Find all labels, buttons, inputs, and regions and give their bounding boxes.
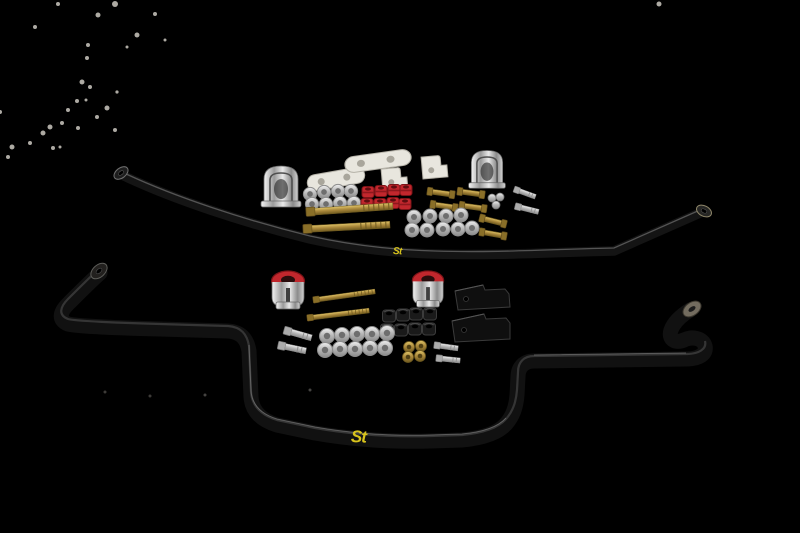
red-bushing	[400, 185, 412, 196]
washer	[335, 328, 350, 343]
product-photo: St St	[0, 0, 800, 533]
washer	[365, 327, 380, 342]
washer	[380, 326, 395, 341]
rubber-bushing	[410, 308, 423, 320]
rubber-bushing	[397, 309, 410, 321]
rubber-bushing	[395, 324, 408, 336]
washer	[320, 329, 335, 344]
red-bushing	[362, 187, 374, 198]
washer	[405, 223, 419, 237]
chrome-clamp-right	[469, 151, 506, 189]
red-bushing	[375, 186, 387, 197]
washer	[454, 208, 468, 222]
washer	[350, 327, 365, 342]
gold-washer	[403, 352, 414, 363]
black-bracket-1	[455, 285, 510, 310]
washer	[436, 222, 450, 236]
washer	[348, 342, 363, 357]
washer-cluster-front-right	[405, 208, 479, 237]
chrome-clamp-left	[261, 166, 301, 207]
washer	[344, 184, 357, 197]
rubber-bushing	[424, 308, 437, 320]
gold-washer	[416, 341, 427, 352]
washer	[439, 209, 453, 223]
rubber-bushing	[423, 323, 436, 335]
red-bushing	[399, 199, 411, 210]
washer	[317, 185, 330, 198]
washer	[465, 221, 479, 235]
washer	[407, 210, 421, 224]
washer	[333, 342, 348, 357]
washer	[451, 222, 465, 236]
washer	[363, 341, 378, 356]
rubber-bushing	[383, 310, 396, 322]
washer	[331, 184, 344, 197]
bushing-clamp-right	[412, 271, 443, 307]
washer	[423, 209, 437, 223]
sway-bar-kit-scene: St St	[0, 0, 800, 533]
washer	[318, 343, 333, 358]
washer	[378, 341, 393, 356]
background	[0, 0, 800, 533]
gold-washer	[404, 342, 415, 353]
red-bushing	[388, 185, 400, 196]
gold-washer	[415, 351, 426, 362]
bushing-clamp-left	[272, 271, 305, 309]
washer	[420, 223, 434, 237]
rubber-bushing	[409, 323, 422, 335]
washer-cluster-rear	[318, 326, 395, 358]
